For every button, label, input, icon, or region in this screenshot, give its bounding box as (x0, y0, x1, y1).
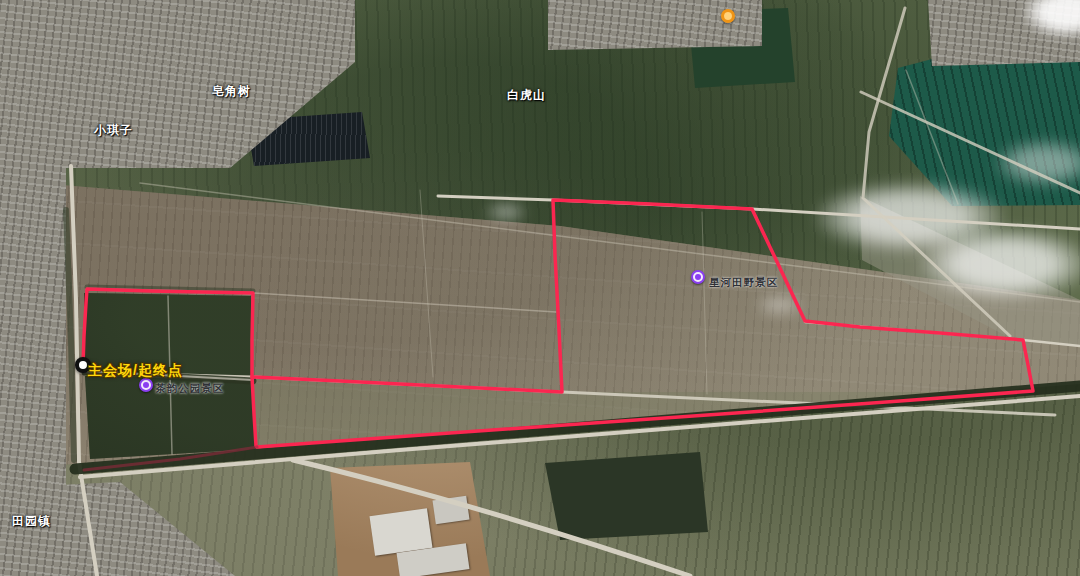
scenic-area-marker-xinghe[interactable] (691, 270, 705, 284)
scenic-area-marker-chayun[interactable] (139, 378, 153, 392)
satellite-map[interactable]: 小琪子 皂角树 白虎山 星河田野景区 主会场/起终点 茶韵公园景区 田园镇 (0, 0, 1080, 576)
place-label-baihushan: 白虎山 (507, 87, 546, 104)
orange-poi-marker[interactable] (721, 9, 735, 23)
place-label-tianyuan: 田园镇 (12, 513, 51, 530)
place-label-xiaoqizi: 小琪子 (94, 122, 133, 139)
place-label-zaojiaoshu: 皂角树 (212, 83, 251, 100)
place-label-xinghe: 星河田野景区 (709, 276, 778, 290)
place-label-chayun: 茶韵公园景区 (155, 382, 224, 396)
scenic-marker-icon (695, 274, 701, 280)
treelines-layer (66, 210, 1080, 469)
scenic-marker-icon (143, 382, 149, 388)
start-finish-label: 主会场/起终点 (88, 362, 183, 380)
